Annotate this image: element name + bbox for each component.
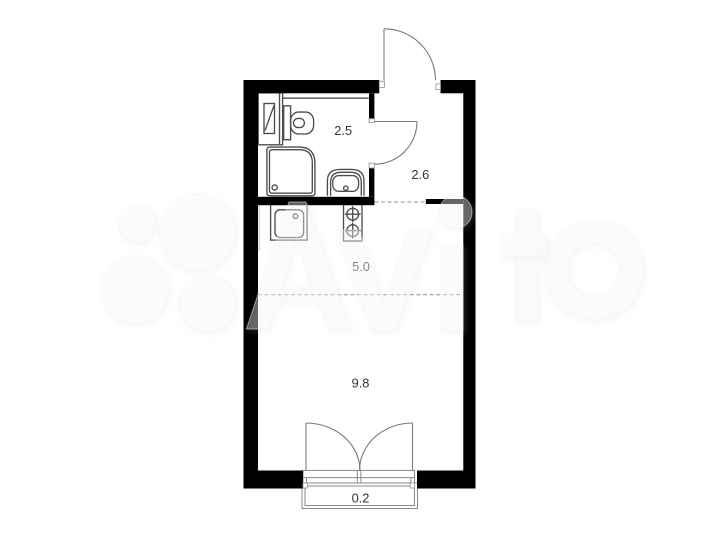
svg-text:0.2: 0.2	[352, 491, 370, 506]
svg-text:2.6: 2.6	[411, 167, 429, 182]
svg-text:2.5: 2.5	[334, 123, 352, 138]
svg-text:9.8: 9.8	[352, 375, 370, 390]
